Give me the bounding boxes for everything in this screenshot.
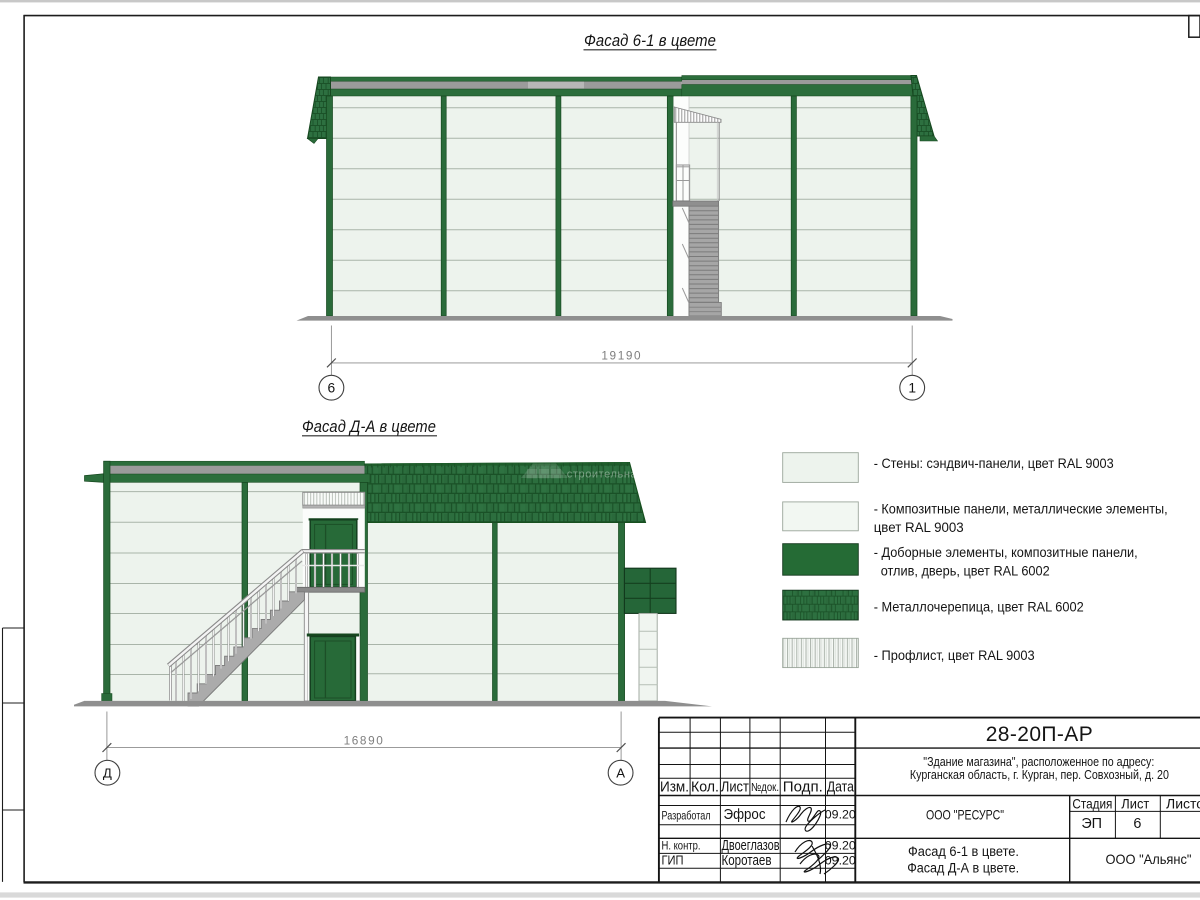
svg-text:отлив, дверь, цвет RAL 6002: отлив, дверь, цвет RAL 6002 [881, 563, 1050, 579]
svg-text:Эфрос: Эфрос [724, 807, 766, 823]
svg-text:Изм.: Изм. [660, 779, 689, 796]
svg-text:Листов: Листов [1166, 795, 1200, 811]
svg-text:Дата: Дата [827, 779, 854, 796]
svg-text:цвет RAL 9003: цвет RAL 9003 [874, 519, 964, 535]
svg-text:Коротаев: Коротаев [722, 853, 772, 869]
svg-text:ГИП: ГИП [662, 854, 684, 868]
svg-text:№док.: №док. [751, 781, 779, 794]
svg-text:ООО "Альянс": ООО "Альянс" [1106, 852, 1192, 867]
svg-text:ООО "РЕСУРС": ООО "РЕСУРС" [926, 808, 1004, 823]
svg-text:Д: Д [103, 766, 112, 781]
svg-text:09.20: 09.20 [825, 839, 856, 853]
svg-text:09.20: 09.20 [825, 808, 856, 822]
svg-text:ЭП: ЭП [1081, 816, 1102, 832]
svg-text:Фасад 6-1 в цвете: Фасад 6-1 в цвете [584, 32, 716, 50]
svg-text:Двоеглазов: Двоеглазов [722, 838, 780, 854]
svg-text:1: 1 [908, 381, 916, 396]
svg-text:09.20: 09.20 [825, 853, 856, 867]
svg-text:Н. контр.: Н. контр. [662, 839, 701, 853]
svg-text:Стадия: Стадия [1072, 795, 1112, 811]
svg-text:- Металлочерепица, цвет RAL 60: - Металлочерепица, цвет RAL 6002 [874, 599, 1084, 615]
svg-text:Подп.: Подп. [783, 779, 823, 796]
svg-text:16890: 16890 [344, 733, 385, 747]
svg-text:6: 6 [328, 381, 336, 396]
svg-text:- Доборные элементы, композит: - Доборные элементы, композитные панели, [874, 544, 1138, 560]
svg-text:Кол.: Кол. [691, 779, 719, 796]
svg-text:- Стены: сэндвич-панели, цвет: - Стены: сэндвич-панели, цвет RAL 9003 [874, 455, 1114, 471]
svg-text:28-20П-АР: 28-20П-АР [986, 723, 1093, 746]
svg-text:Лист: Лист [1121, 795, 1150, 811]
svg-text:6: 6 [1133, 816, 1141, 832]
svg-text:Фасад Д-А в цвете.: Фасад Д-А в цвете. [907, 861, 1019, 876]
svg-text:Разработал: Разработал [662, 808, 711, 822]
svg-text:- Профлист, цвет RAL 9003: - Профлист, цвет RAL 9003 [874, 647, 1035, 663]
svg-text:Фасад 6-1 в цвете.: Фасад 6-1 в цвете. [908, 844, 1019, 859]
svg-text:19190: 19190 [601, 349, 642, 363]
svg-text:Курганская область, г. Курган,: Курганская область, г. Курган, пер. Совх… [910, 767, 1169, 782]
svg-text:Фасад Д-А в цвете: Фасад Д-А в цвете [302, 418, 436, 436]
svg-text:строительна: строительна [567, 469, 638, 481]
svg-text:- Композитные панели, металлич: - Композитные панели, металлические элем… [874, 501, 1168, 517]
svg-text:А: А [616, 766, 625, 781]
svg-text:Лист: Лист [721, 779, 749, 796]
